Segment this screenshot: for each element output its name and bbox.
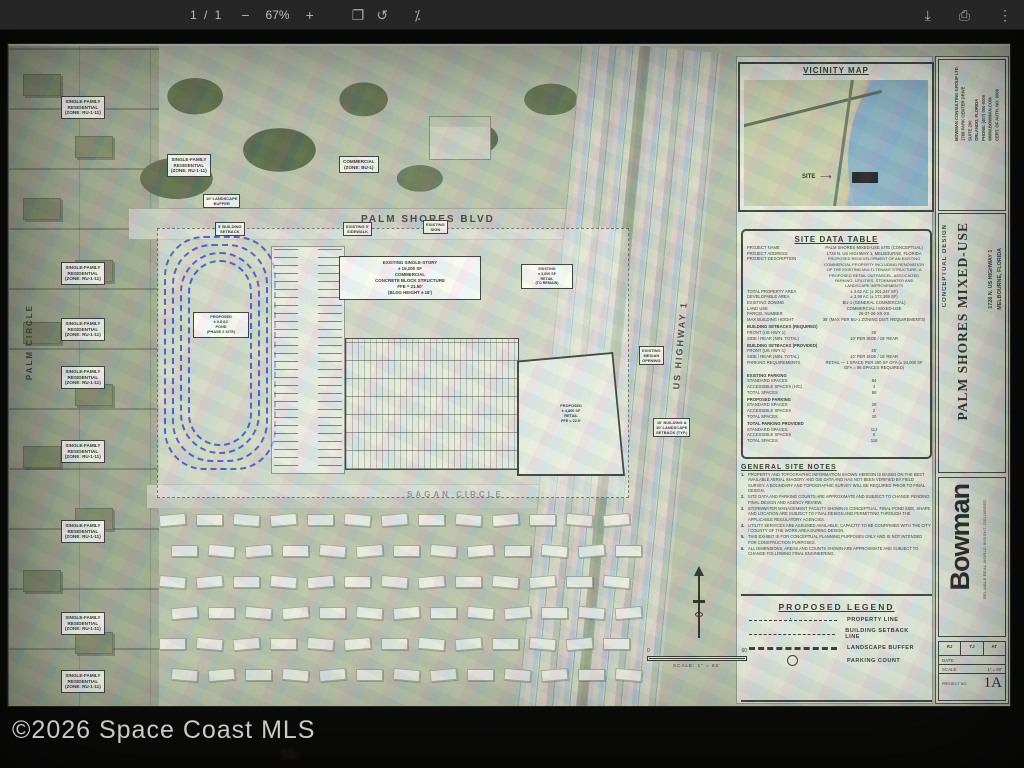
zoning-callout-label: SINGLE-FAMILY RESIDENTIAL (ZONE: RU-1-11… [61, 262, 105, 285]
legend-line-sample [749, 656, 837, 666]
north-arrow-icon [693, 566, 705, 646]
download-icon[interactable]: ⤓ [919, 6, 937, 24]
faint-photo-text: Mc [280, 746, 301, 764]
scale-row: SCALE: 1" = 60' [939, 665, 1005, 674]
site-data-rows: PROJECT NAME PALM SHORES MIXED-USE SITE … [747, 245, 926, 444]
site-arrow-icon: ⟶ [820, 172, 831, 181]
zoning-callout-label: SINGLE-FAMILY RESIDENTIAL (ZONE: RU-1-11… [61, 670, 105, 693]
legend-line-sample [749, 634, 835, 635]
zoning-callout-label: EXISTING SIGN [423, 220, 448, 234]
site-data-row: TOTAL SPACES 118 [747, 438, 926, 444]
general-notes-title: GENERAL SITE NOTES [741, 462, 932, 471]
initials-row: RJ TJ AT [939, 642, 1005, 656]
pond-label: PROPOSED ± 0.8 AC POND (PHASE 2 SITE) [193, 312, 249, 338]
zoning-callout-label: SINGLE-FAMILY RESIDENTIAL (ZONE: RU-1-11… [167, 154, 211, 177]
graphic-scale-bar: 060 SCALE: 1" = 60' [647, 648, 747, 668]
zoning-callout-label: SINGLE-FAMILY RESIDENTIAL (ZONE: RU-1-11… [61, 440, 105, 463]
vicinity-map: VICINITY MAP SITE ⟶ [738, 62, 934, 212]
sheet-number: 1A [984, 675, 1002, 692]
site-data-row: MAX BUILDING HEIGHT 35' (MAX PER BU-1 ZO… [747, 317, 926, 323]
existing-building-label: EXISTING SINGLE-STORY ± 19,200 SF COMMER… [339, 256, 481, 300]
legend-item: LANDSCAPE BUFFER [749, 645, 924, 651]
site-data-row: TOTAL SPACES 88 [747, 390, 926, 396]
general-site-notes: GENERAL SITE NOTES 1. PROPERTY AND TOPOG… [741, 462, 932, 566]
site-data-row: PARKING REQUIREMENTS RETAIL — 1 SPACE PE… [747, 360, 926, 371]
fit-page-icon[interactable]: ❐ [346, 6, 371, 24]
zoom-level: 67% [266, 8, 290, 22]
palm-circle-label: PALM CIRCLE [25, 304, 34, 380]
legend-title: PROPOSED LEGEND [741, 600, 932, 612]
sheet-info-grid: RJ TJ AT DATE: SCALE: 1" = 60' PROJECT N… [938, 641, 1006, 701]
site-data-row: SIDE / REAR (MIN. TOTAL) 10' PER SIDE / … [747, 336, 926, 342]
proposed-legend: PROPOSED LEGEND PROPERTY LINE BUILDING S… [741, 594, 932, 702]
legend-line-sample [749, 620, 837, 621]
bowman-logo: Bowman [945, 484, 976, 591]
firm-logo-section: Bowman RELIABLE REAL-WORLD INSIGHT. DELI… [938, 477, 1006, 637]
page-indicator: 1 / 1 [190, 8, 223, 22]
proposed-retail-building: PROPOSED ± 4,800 SF RETAIL FFE = 22.0' [517, 352, 625, 476]
proposed-retail-label: PROPOSED ± 4,800 SF RETAIL FFE = 22.0' [560, 404, 582, 424]
parking-bays [271, 246, 345, 474]
note-line: 4. UTILITY SERVICES ARE ASSUMED AVAILABL… [741, 523, 932, 534]
firm-tagline: RELIABLE REAL-WORLD INSIGHT. DELIVERED. [983, 498, 987, 599]
site-data-table-title: SITE DATA TABLE [747, 233, 926, 244]
consultant-text: BOWMAN CONSULTING GROUP LTD. 1768 PARK C… [954, 66, 1001, 141]
legend-item: PARKING COUNT [749, 656, 924, 666]
zoning-callout-label: EXISTING 5' SIDEWALK [343, 222, 372, 236]
note-line: 5. THIS EXHIBIT IS FOR CONCEPTUAL PLANNI… [741, 534, 932, 545]
zoning-callout-label: SINGLE-FAMILY RESIDENTIAL (ZONE: RU-1-11… [61, 96, 105, 119]
legend-items: PROPERTY LINE BUILDING SETBACK LINE LAND… [741, 617, 932, 666]
consultant-info: BOWMAN CONSULTING GROUP LTD. 1768 PARK C… [938, 59, 1006, 211]
site-data-row: PROJECT DESCRIPTION PROPOSED REDEVELOPME… [747, 256, 926, 288]
zoning-callout-label: SINGLE-FAMILY RESIDENTIAL (ZONE: RU-1-11… [61, 366, 105, 389]
existing-outparcel-label: EXISTING ± 3,600 SF RETAIL (TO REMAIN) [521, 264, 573, 289]
pond-contour [188, 260, 252, 446]
project-title-section: CONCEPTUAL DESIGN PALM SHORES MIXED-USE … [938, 213, 1006, 473]
site-data-table: SITE DATA TABLE PROJECT NAME PALM SHORES… [741, 229, 932, 459]
legend-line-sample [749, 647, 837, 650]
pdf-toolbar: 1 / 1 − 67% + ❐ ↺ ⁒ ⤓ ⎙ ⋮ [0, 0, 1024, 30]
document-photo: PALM SHORES BLVD PALM CIRCLE SAGAN CIRCL… [0, 30, 1024, 768]
trailer-park [159, 514, 645, 702]
scale-sixty: 60 [741, 648, 747, 654]
more-options-icon[interactable]: ⋮ [992, 6, 1018, 24]
title-block: BOWMAN CONSULTING GROUP LTD. 1768 PARK C… [935, 56, 1009, 704]
site-label: SITE [802, 174, 815, 180]
print-icon[interactable]: ⎙ [953, 6, 976, 24]
vicinity-map-image: SITE ⟶ [744, 80, 928, 206]
site-plan-sheet: PALM SHORES BLVD PALM CIRCLE SAGAN CIRCL… [8, 44, 1010, 706]
site-marker [852, 172, 878, 183]
project-address: 1728 N. US HIGHWAY 1 MELBOURNE, FLORIDA [987, 248, 1005, 310]
zoning-callout-label: SINGLE-FAMILY RESIDENTIAL (ZONE: RU-1-11… [61, 612, 105, 635]
water-area [848, 80, 928, 206]
mls-watermark: ©2026 Space Coast MLS [12, 716, 315, 745]
zoom-out-button[interactable]: − [235, 6, 255, 24]
zoom-in-button[interactable]: + [300, 6, 320, 24]
zoning-callout-label: SINGLE-FAMILY RESIDENTIAL (ZONE: RU-1-11… [61, 318, 105, 341]
zoning-callout-label: 5' BUILDING SETBACK [215, 222, 245, 236]
vicinity-map-title: VICINITY MAP [740, 64, 932, 75]
legend-item: BUILDING SETBACK LINE [749, 628, 924, 640]
note-line: 3. STORMWATER MANAGEMENT FACILITY SHOWN … [741, 506, 932, 522]
screenshot-root: 1 / 1 − 67% + ❐ ↺ ⁒ ⤓ ⎙ ⋮ PALM SHORES BL… [0, 0, 1024, 768]
note-line: 2. SITE DATA AND PARKING COUNTS ARE APPR… [741, 494, 932, 505]
rotate-icon[interactable]: ↺ [370, 6, 394, 24]
existing-structure-aerial [429, 116, 491, 160]
zoning-callout-label: COMMERCIAL (ZONE: BU-1) [339, 156, 379, 173]
zoning-callout-label: SINGLE-FAMILY RESIDENTIAL (ZONE: RU-1-11… [61, 520, 105, 543]
tree-canopy-aerial [139, 52, 607, 210]
design-phase-label: CONCEPTUAL DESIGN [942, 224, 948, 307]
note-line: 6. ALL DIMENSIONS, AREAS AND COUNTS SHOW… [741, 546, 932, 557]
zoning-callout-label: 10' LANDSCAPE BUFFER [203, 194, 240, 208]
sheet-number-row: PROJECT NO. 1A [939, 674, 1005, 693]
scale-caption: SCALE: 1" = 60' [647, 663, 747, 668]
presentation-icon[interactable]: ⁒ [408, 6, 426, 24]
date-row: DATE: [939, 656, 1005, 665]
site-data-row: TOTAL SPACES 30 [747, 414, 926, 420]
project-title: PALM SHORES MIXED-USE [955, 222, 971, 421]
zoning-callout-label: 10' BUILDING & 10' LANDSCAPE SETBACK (TY… [653, 418, 690, 437]
notes-list: 1. PROPERTY AND TOPOGRAPHIC INFORMATION … [741, 472, 932, 557]
central-parking-field [345, 338, 519, 470]
scale-zero: 0 [647, 648, 650, 654]
zoning-callout-label: EXISTING MEDIAN OPENING [639, 346, 664, 365]
legend-item: PROPERTY LINE [749, 617, 924, 623]
note-line: 1. PROPERTY AND TOPOGRAPHIC INFORMATION … [741, 472, 932, 493]
